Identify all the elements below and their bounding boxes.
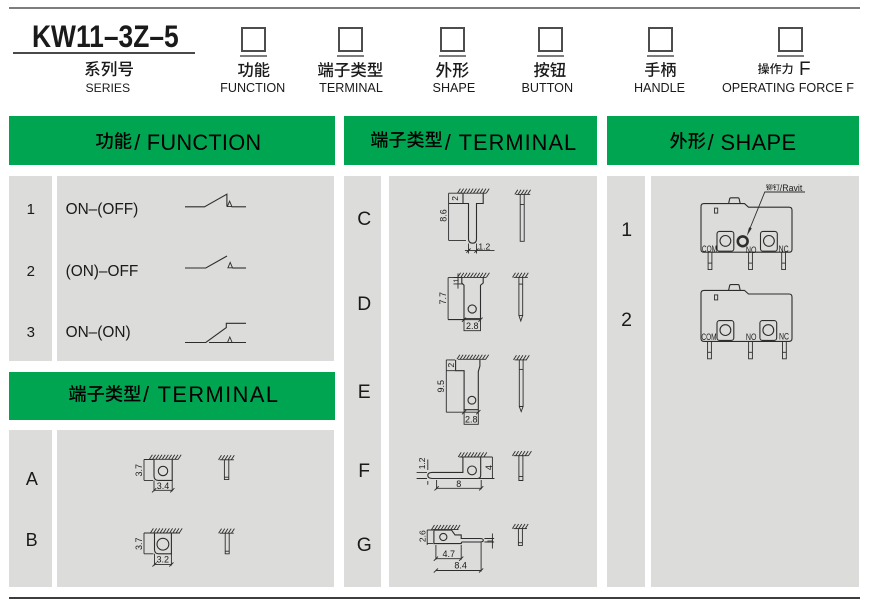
svg-text:3.7: 3.7 <box>134 538 144 551</box>
svg-text:1.2: 1.2 <box>478 241 490 251</box>
svg-text:2: 2 <box>446 363 456 368</box>
svg-text:COM: COM <box>701 332 716 342</box>
svg-text:3.2: 3.2 <box>156 555 169 565</box>
svg-text:NO: NO <box>746 245 757 255</box>
svg-text:NC: NC <box>779 244 789 254</box>
svg-text:7.7: 7.7 <box>438 292 448 305</box>
svg-text:3.7: 3.7 <box>134 464 144 477</box>
svg-text:3.4: 3.4 <box>157 481 170 491</box>
svg-text:2: 2 <box>450 196 460 201</box>
svg-text:1.2: 1.2 <box>417 457 427 469</box>
svg-text:COM: COM <box>702 244 717 254</box>
svg-text:1: 1 <box>485 539 494 543</box>
svg-text:NC: NC <box>779 332 789 342</box>
svg-text:1: 1 <box>452 279 461 283</box>
svg-text:NO: NO <box>746 332 757 342</box>
svg-text:8.6: 8.6 <box>439 209 449 222</box>
svg-text:2.6: 2.6 <box>418 530 428 542</box>
svg-text:2.8: 2.8 <box>466 321 479 331</box>
svg-text:2.8: 2.8 <box>465 415 478 425</box>
svg-text:4: 4 <box>484 465 494 470</box>
svg-text:8: 8 <box>456 479 461 489</box>
svg-text:8.4: 8.4 <box>454 561 467 571</box>
svg-text:4.7: 4.7 <box>442 549 455 559</box>
svg-text:9.5: 9.5 <box>436 380 446 393</box>
